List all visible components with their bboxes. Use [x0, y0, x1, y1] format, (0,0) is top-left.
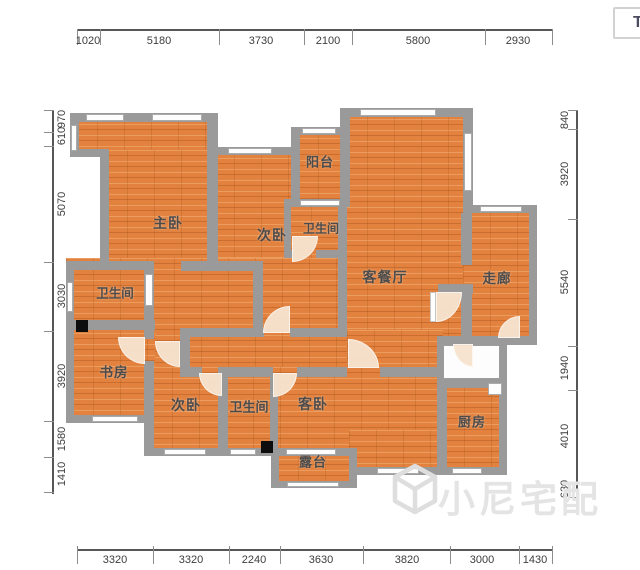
- watermark-cube-icon: [391, 462, 439, 516]
- wall: [144, 361, 154, 456]
- dimension-tick: [77, 546, 78, 564]
- watermark-text: 小尼宅配: [438, 469, 602, 523]
- room-label-kitchen: 厨房: [458, 412, 486, 431]
- room-label-balcony: 阳台: [306, 152, 334, 171]
- window: [164, 449, 206, 455]
- dimension-line-bottom: [77, 549, 553, 551]
- dimension-tick: [485, 29, 486, 45]
- window: [71, 125, 77, 151]
- dim-right-4: 4010: [559, 424, 571, 448]
- window: [228, 148, 272, 154]
- window: [230, 449, 256, 455]
- corner-button[interactable]: T: [613, 7, 640, 39]
- dimension-tick: [280, 546, 281, 564]
- dimension-tick: [44, 132, 54, 133]
- dimension-tick: [219, 29, 220, 45]
- dim-top-2: 3730: [249, 35, 273, 47]
- wall: [461, 284, 472, 338]
- floor-bedroom-2: [207, 147, 291, 271]
- pillar: [261, 441, 273, 453]
- dimension-tick: [568, 390, 578, 391]
- wall: [290, 328, 347, 337]
- wall: [499, 336, 507, 475]
- room-label-living-dining: 客餐厅: [363, 267, 408, 287]
- wall: [253, 261, 263, 330]
- room-label-corridor: 走廊: [483, 267, 512, 287]
- dim-left-2: 5070: [56, 192, 68, 216]
- kitchen-sink-icon: [488, 383, 502, 395]
- room-label-bathroom-3: 卫生间: [229, 397, 268, 416]
- dim-right-0: 840: [559, 111, 571, 129]
- wall: [207, 113, 218, 271]
- room-label-bathroom-1: 卫生间: [303, 220, 339, 237]
- corner-button-label: T: [633, 14, 640, 32]
- dimension-tick: [450, 546, 451, 564]
- dimension-line-top: [77, 29, 553, 31]
- window: [92, 416, 138, 422]
- dimension-tick: [44, 110, 54, 111]
- dimension-tick: [552, 29, 553, 45]
- wall: [100, 149, 109, 268]
- dimension-line-right: [576, 110, 578, 499]
- door-leaf: [430, 292, 436, 322]
- dimension-tick: [153, 546, 154, 564]
- dim-top-1: 5180: [147, 35, 171, 47]
- window: [302, 128, 336, 134]
- wall: [144, 323, 154, 339]
- room-label-guest-bedroom: 客卧: [298, 394, 328, 414]
- wall: [297, 367, 347, 377]
- wall: [380, 367, 443, 377]
- room-label-bedroom-3: 次卧: [171, 395, 201, 415]
- dimension-tick: [352, 29, 353, 45]
- dim-left-3: 3030: [56, 284, 68, 308]
- dimension-tick: [552, 546, 553, 564]
- room-label-terrace: 露台: [299, 452, 327, 471]
- dimension-tick: [568, 219, 578, 220]
- wall: [66, 261, 147, 270]
- dim-bottom-2: 2240: [242, 554, 266, 566]
- window: [464, 133, 472, 191]
- dimension-tick: [44, 262, 54, 263]
- door-opening: [145, 274, 153, 306]
- room-label-bedroom-2: 次卧: [257, 225, 287, 245]
- dim-right-3: 1940: [559, 356, 571, 380]
- dim-top-3: 2100: [316, 35, 340, 47]
- floor-master-bedroom: [100, 150, 218, 271]
- dim-left-5: 1580: [56, 427, 68, 451]
- dim-bottom-6: 1430: [523, 554, 547, 566]
- dim-right-1: 3920: [559, 162, 571, 186]
- room-label-study: 书房: [100, 361, 129, 381]
- room-label-bathroom-2: 卫生间: [96, 283, 134, 302]
- wall: [338, 207, 347, 337]
- room-label-master-bedroom: 主卧: [153, 213, 183, 233]
- dimension-tick: [519, 546, 520, 564]
- window: [300, 200, 340, 206]
- wall: [180, 328, 264, 337]
- wall: [291, 127, 300, 207]
- dimension-tick: [304, 29, 305, 45]
- dimension-tick: [44, 146, 54, 147]
- wall: [461, 213, 472, 265]
- dim-top-0: 1020: [76, 35, 100, 47]
- wall: [222, 367, 273, 377]
- window: [86, 114, 124, 121]
- dim-bottom-4: 3820: [395, 554, 419, 566]
- window: [480, 206, 522, 212]
- dim-bottom-3: 3630: [309, 554, 333, 566]
- pillar: [76, 320, 88, 332]
- dim-bottom-5: 3000: [470, 554, 494, 566]
- dimension-tick: [44, 421, 54, 422]
- dim-right-2: 5540: [559, 270, 571, 294]
- window: [360, 109, 436, 116]
- window: [287, 482, 339, 487]
- window: [152, 114, 202, 121]
- dim-bottom-1: 3320: [179, 554, 203, 566]
- dim-left-4: 3920: [56, 364, 68, 388]
- dimension-tick: [229, 546, 230, 564]
- dim-left-1: 610: [56, 127, 68, 145]
- wall: [181, 261, 262, 271]
- dim-left-0: 970: [56, 110, 68, 128]
- dim-top-5: 2930: [506, 35, 530, 47]
- dim-bottom-0: 3320: [103, 554, 127, 566]
- dimension-tick: [44, 457, 54, 458]
- dimension-tick: [568, 346, 578, 347]
- floorplan-screenshot: 主卧 次卧 阳台 卫生间 客餐厅 走廊 卫生间 书房 次卧 卫生间 客卧 厨房 …: [0, 0, 640, 570]
- wall: [529, 205, 537, 345]
- dimension-tick: [44, 331, 54, 332]
- dimension-tick: [363, 546, 364, 564]
- dim-top-4: 5800: [406, 35, 430, 47]
- dimension-line-left: [52, 110, 54, 494]
- wall: [340, 108, 350, 207]
- dim-left-6: 1410: [56, 462, 68, 486]
- dimension-tick: [44, 492, 54, 493]
